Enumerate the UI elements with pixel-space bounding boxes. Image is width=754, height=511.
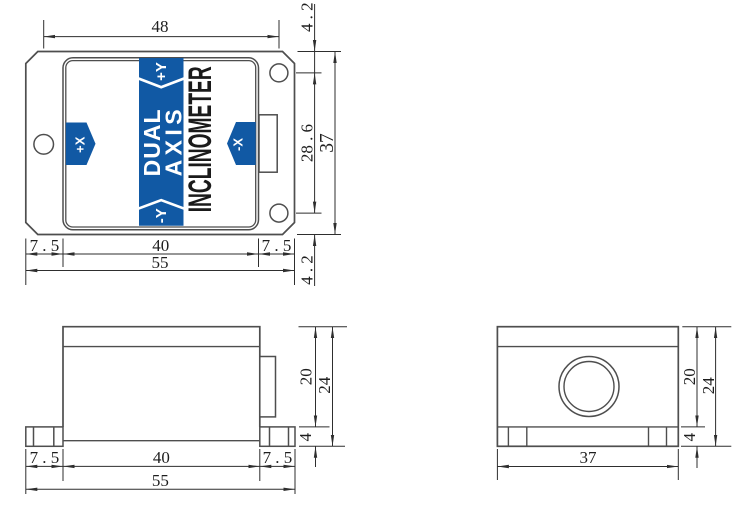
svg-text:7.5: 7.5 bbox=[263, 448, 293, 467]
svg-text:+X: +X bbox=[73, 136, 88, 153]
svg-text:55: 55 bbox=[152, 253, 169, 272]
svg-text:INCLINOMETER: INCLINOMETER bbox=[182, 66, 218, 212]
svg-text:7.5: 7.5 bbox=[262, 236, 292, 255]
svg-text:+Y: +Y bbox=[153, 62, 170, 81]
svg-text:24: 24 bbox=[315, 376, 334, 394]
svg-text:4: 4 bbox=[296, 432, 315, 441]
svg-text:20: 20 bbox=[680, 368, 699, 385]
svg-text:-X: -X bbox=[230, 138, 245, 151]
svg-text:48: 48 bbox=[152, 17, 169, 36]
svg-text:40: 40 bbox=[153, 448, 170, 467]
svg-text:4.2: 4.2 bbox=[298, 2, 317, 32]
svg-text:24: 24 bbox=[699, 377, 718, 395]
svg-text:37: 37 bbox=[580, 448, 598, 467]
svg-text:4: 4 bbox=[680, 432, 699, 441]
svg-text:7.5: 7.5 bbox=[30, 448, 60, 467]
svg-text:20: 20 bbox=[297, 368, 316, 385]
svg-text:-Y: -Y bbox=[153, 208, 170, 223]
svg-text:4.2: 4.2 bbox=[298, 255, 317, 285]
svg-text:7.5: 7.5 bbox=[30, 236, 60, 255]
svg-text:28.6: 28.6 bbox=[298, 124, 317, 162]
svg-text:55: 55 bbox=[152, 471, 169, 490]
svg-text:37: 37 bbox=[317, 133, 338, 153]
